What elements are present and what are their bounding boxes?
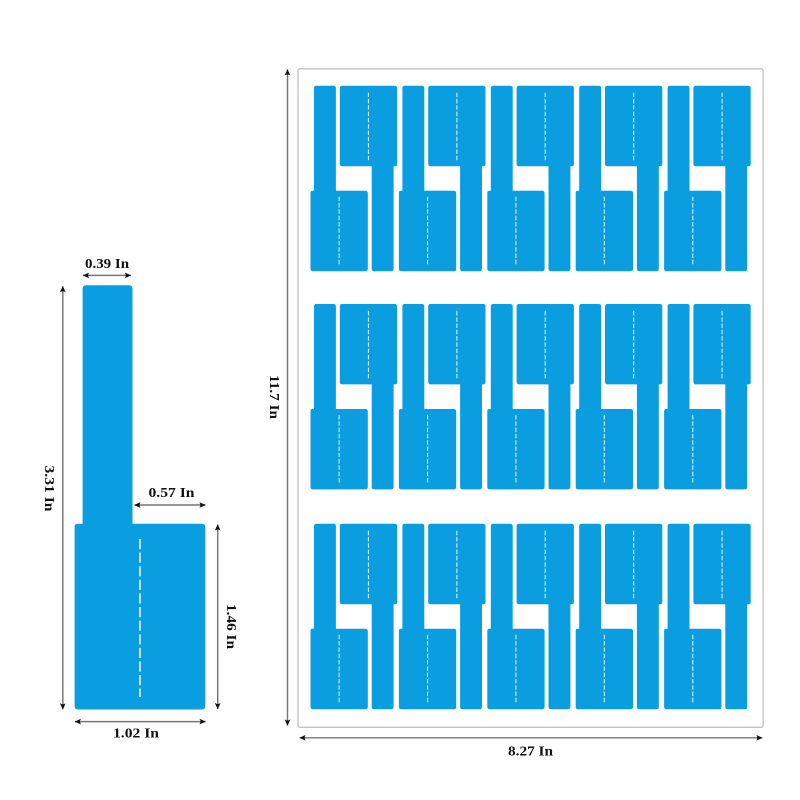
svg-text:11.7 In: 11.7 In xyxy=(267,375,282,420)
svg-text:0.39 In: 0.39 In xyxy=(85,256,130,271)
svg-text:8.27 In: 8.27 In xyxy=(508,744,554,759)
svg-text:0.57 In: 0.57 In xyxy=(149,485,196,500)
svg-text:1.02 In: 1.02 In xyxy=(113,726,160,741)
svg-text:3.31 In: 3.31 In xyxy=(42,466,57,513)
svg-text:1.46 In: 1.46 In xyxy=(224,604,239,650)
